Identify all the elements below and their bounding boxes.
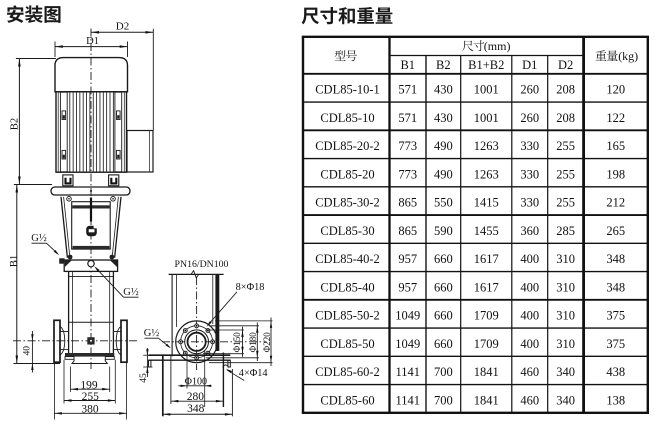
- svg-text:B2: B2: [436, 58, 451, 72]
- svg-text:700: 700: [434, 365, 453, 379]
- svg-text:PN16/DN100: PN16/DN100: [175, 259, 229, 270]
- svg-text:400: 400: [520, 309, 539, 323]
- svg-text:CDL85-20-2: CDL85-20-2: [315, 139, 380, 153]
- svg-text:255: 255: [556, 167, 575, 181]
- svg-text:490: 490: [434, 167, 453, 181]
- svg-text:330: 330: [520, 139, 539, 153]
- svg-text:660: 660: [434, 280, 453, 294]
- svg-text:(kg): (kg): [618, 49, 638, 63]
- svg-text:571: 571: [398, 83, 417, 97]
- svg-text:348: 348: [187, 403, 205, 415]
- svg-text:330: 330: [520, 196, 539, 210]
- svg-text:B2: B2: [10, 118, 21, 130]
- svg-text:CDL85-40: CDL85-40: [320, 280, 374, 294]
- svg-text:208: 208: [556, 83, 575, 97]
- svg-text:45: 45: [139, 373, 149, 383]
- svg-text:348: 348: [606, 280, 625, 294]
- svg-text:660: 660: [434, 309, 453, 323]
- svg-text:255: 255: [556, 139, 575, 153]
- svg-text:255: 255: [82, 391, 100, 403]
- svg-text:660: 660: [434, 252, 453, 266]
- svg-text:B1+B2: B1+B2: [468, 58, 504, 72]
- svg-text:212: 212: [606, 196, 625, 210]
- svg-text:1841: 1841: [474, 393, 499, 407]
- svg-text:B1: B1: [400, 58, 415, 72]
- svg-text:380: 380: [81, 403, 99, 415]
- svg-text:Φ150: Φ150: [232, 332, 242, 353]
- svg-text:D2: D2: [116, 21, 129, 33]
- svg-text:1709: 1709: [474, 337, 499, 351]
- svg-text:1617: 1617: [474, 280, 499, 294]
- svg-text:1617: 1617: [474, 252, 499, 266]
- svg-text:8×Φ18: 8×Φ18: [236, 282, 265, 293]
- svg-text:D2: D2: [558, 58, 573, 72]
- svg-text:773: 773: [398, 139, 417, 153]
- svg-text:1263: 1263: [474, 167, 499, 181]
- svg-text:1709: 1709: [474, 309, 499, 323]
- svg-text:285: 285: [556, 224, 575, 238]
- svg-text:957: 957: [398, 252, 417, 266]
- svg-text:CDL85-60: CDL85-60: [320, 393, 374, 407]
- svg-text:490: 490: [434, 139, 453, 153]
- svg-text:660: 660: [434, 337, 453, 351]
- svg-text:1455: 1455: [474, 224, 499, 238]
- svg-text:G½: G½: [31, 233, 47, 244]
- svg-text:CDL85-30: CDL85-30: [320, 224, 374, 238]
- svg-text:700: 700: [434, 393, 453, 407]
- svg-text:1049: 1049: [395, 309, 420, 323]
- svg-text:CDL85-30-2: CDL85-30-2: [315, 196, 380, 210]
- svg-text:CDL85-40-2: CDL85-40-2: [315, 252, 380, 266]
- svg-text:1049: 1049: [395, 337, 420, 351]
- svg-text:340: 340: [556, 393, 575, 407]
- svg-text:310: 310: [556, 337, 575, 351]
- svg-text:430: 430: [434, 83, 453, 97]
- svg-text:460: 460: [520, 365, 539, 379]
- svg-text:280: 280: [187, 391, 205, 403]
- svg-text:CDL85-10-1: CDL85-10-1: [315, 83, 380, 97]
- svg-text:360: 360: [520, 224, 539, 238]
- svg-text:310: 310: [556, 252, 575, 266]
- svg-text:310: 310: [556, 309, 575, 323]
- svg-text:CDL85-60-2: CDL85-60-2: [315, 365, 380, 379]
- svg-text:165: 165: [606, 139, 625, 153]
- svg-text:G½: G½: [144, 328, 160, 339]
- svg-text:330: 330: [520, 167, 539, 181]
- svg-text:208: 208: [556, 111, 575, 125]
- svg-text:1263: 1263: [474, 139, 499, 153]
- svg-text:340: 340: [556, 365, 575, 379]
- svg-text:260: 260: [520, 111, 539, 125]
- svg-text:138: 138: [606, 393, 625, 407]
- svg-text:CDL85-20: CDL85-20: [320, 167, 374, 181]
- svg-text:1141: 1141: [395, 365, 420, 379]
- svg-text:1001: 1001: [474, 83, 499, 97]
- svg-text:773: 773: [398, 167, 417, 181]
- svg-text:Φ180: Φ180: [248, 332, 258, 353]
- svg-text:571: 571: [398, 111, 417, 125]
- svg-text:348: 348: [606, 252, 625, 266]
- svg-text:1841: 1841: [474, 365, 499, 379]
- svg-text:375: 375: [606, 337, 625, 351]
- svg-text:(mm): (mm): [484, 39, 511, 53]
- svg-text:199: 199: [80, 379, 98, 391]
- svg-text:460: 460: [520, 393, 539, 407]
- svg-text:550: 550: [434, 196, 453, 210]
- svg-text:310: 310: [556, 280, 575, 294]
- svg-text:40: 40: [23, 346, 33, 356]
- svg-text:G½: G½: [123, 287, 139, 298]
- svg-text:198: 198: [606, 167, 625, 181]
- svg-text:CDL85-50-2: CDL85-50-2: [315, 309, 380, 323]
- svg-text:Φ220: Φ220: [262, 332, 272, 353]
- svg-text:255: 255: [556, 196, 575, 210]
- svg-text:B1: B1: [9, 255, 20, 267]
- svg-text:1001: 1001: [474, 111, 499, 125]
- svg-text:400: 400: [520, 252, 539, 266]
- svg-text:400: 400: [520, 337, 539, 351]
- svg-text:CDL85-10: CDL85-10: [320, 111, 374, 125]
- svg-text:590: 590: [434, 224, 453, 238]
- svg-text:865: 865: [398, 196, 417, 210]
- svg-text:1415: 1415: [474, 196, 499, 210]
- svg-text:865: 865: [398, 224, 417, 238]
- svg-text:430: 430: [434, 111, 453, 125]
- svg-text:265: 265: [606, 224, 625, 238]
- svg-text:1141: 1141: [395, 393, 420, 407]
- svg-text:438: 438: [606, 365, 625, 379]
- svg-text:D1: D1: [86, 36, 99, 47]
- svg-text:122: 122: [606, 111, 625, 125]
- svg-text:Φ100: Φ100: [185, 377, 207, 388]
- svg-text:4×Φ14: 4×Φ14: [239, 368, 268, 379]
- svg-text:957: 957: [398, 280, 417, 294]
- svg-text:CDL85-50: CDL85-50: [320, 337, 374, 351]
- svg-text:120: 120: [606, 83, 625, 97]
- svg-text:375: 375: [606, 309, 625, 323]
- svg-text:D1: D1: [522, 58, 537, 72]
- svg-text:260: 260: [520, 83, 539, 97]
- svg-text:400: 400: [520, 280, 539, 294]
